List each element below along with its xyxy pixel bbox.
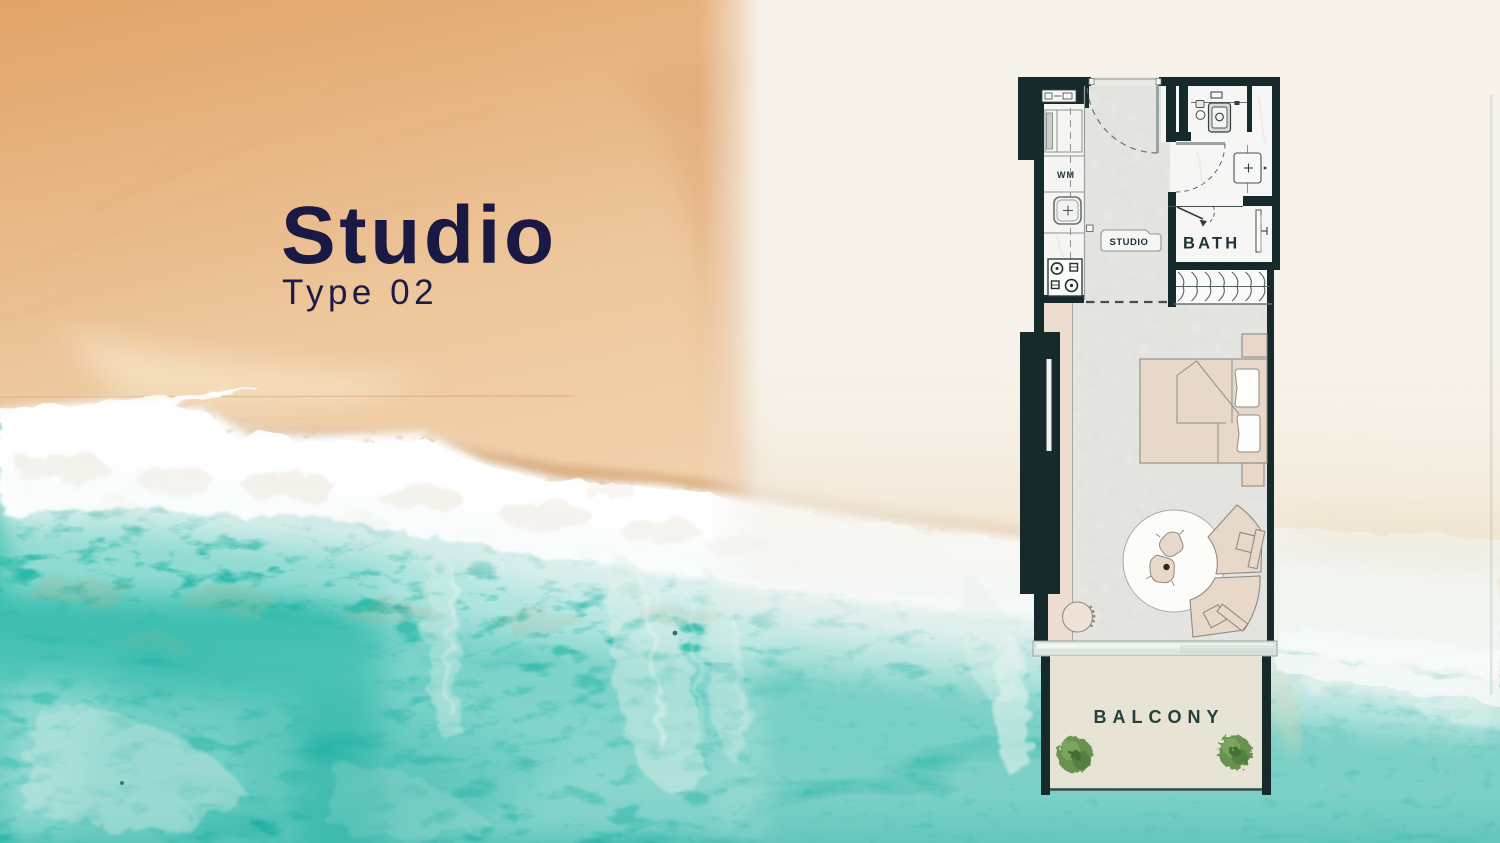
- svg-text:WM: WM: [1057, 170, 1075, 180]
- svg-text:STUDIO: STUDIO: [1110, 237, 1149, 248]
- svg-text:BALCONY: BALCONY: [1094, 707, 1225, 727]
- svg-text:BATH: BATH: [1183, 235, 1240, 253]
